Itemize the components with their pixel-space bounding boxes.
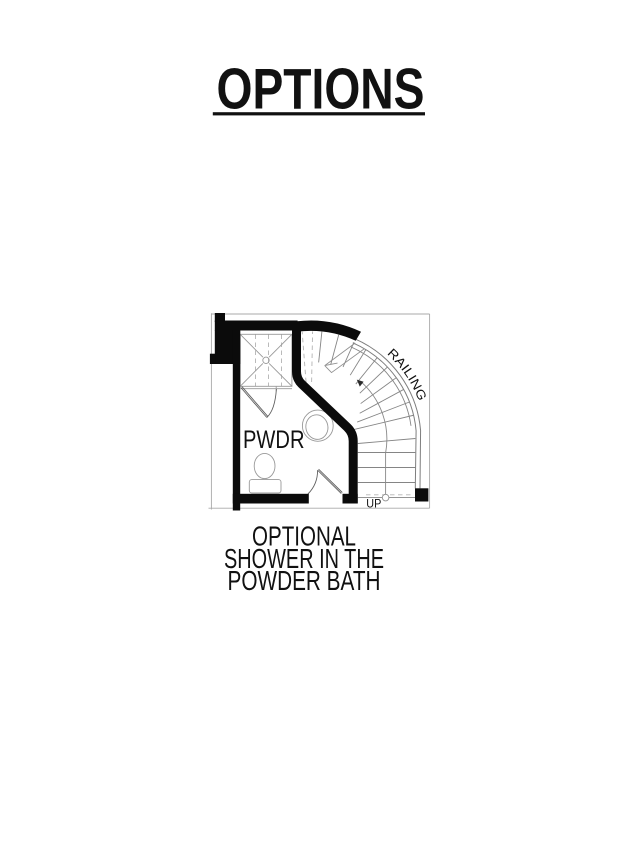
svg-text:POWDER BATH: POWDER BATH [228,565,381,596]
svg-text:UP: UP [366,496,381,510]
svg-text:OPTIONS: OPTIONS [217,58,425,122]
svg-text:RAILING: RAILING [385,346,430,403]
svg-text:PWDR: PWDR [243,426,305,454]
